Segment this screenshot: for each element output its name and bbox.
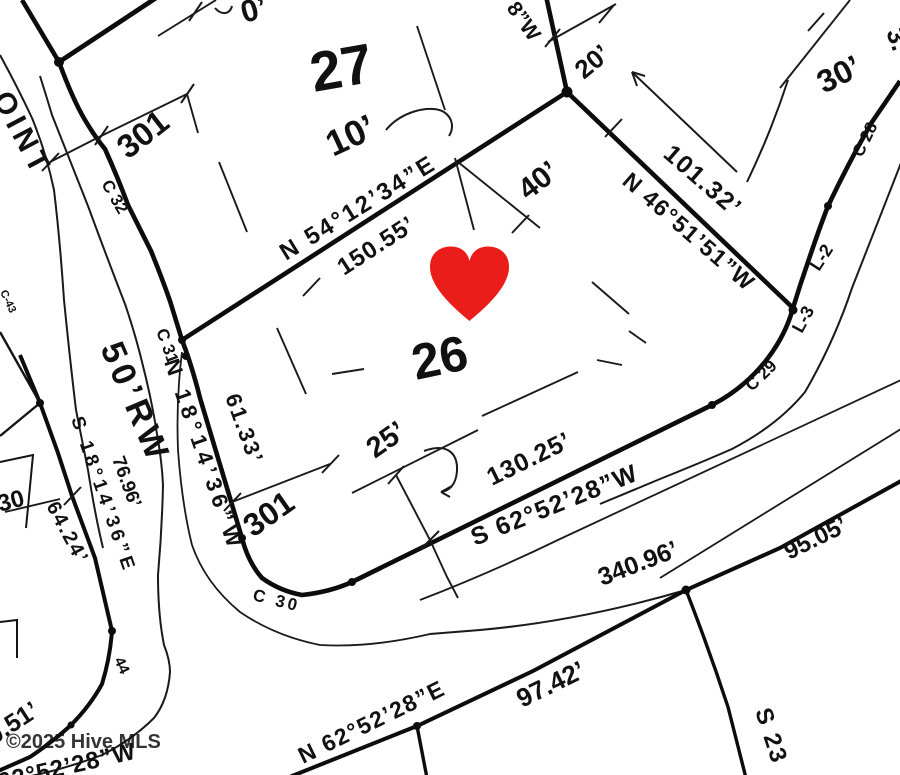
svg-text:27: 27 [305, 31, 377, 104]
svg-text:©2025 Hive MLS: ©2025 Hive MLS [6, 731, 161, 753]
svg-text:26: 26 [407, 324, 473, 390]
